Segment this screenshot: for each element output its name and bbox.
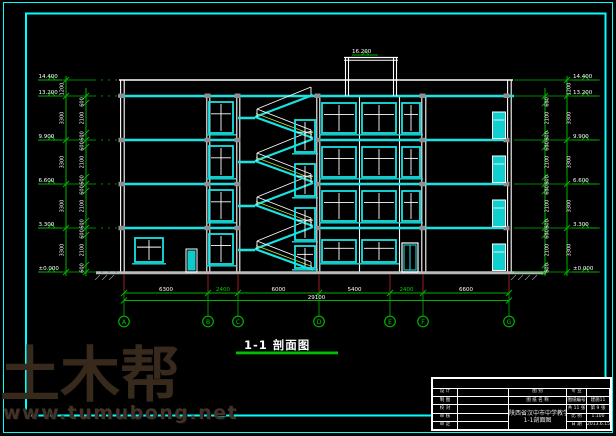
vdim-left-parapet: 1200 xyxy=(60,83,66,96)
tb-value xyxy=(458,405,509,413)
vdim-right-head: 600 xyxy=(545,263,551,273)
elevation-left-0: 14.400 xyxy=(39,74,59,80)
elevation-left-4: 3.300 xyxy=(39,222,55,228)
vdim-right-head: 600 xyxy=(545,219,551,229)
cad-drawing-sheet: 14.40013.2009.9006.6003.300±0.00014.4001… xyxy=(0,0,616,436)
tb-value: 建施11 xyxy=(587,397,610,405)
vdim-left-sill: 600 xyxy=(80,185,86,195)
vdim-left-sill: 600 xyxy=(80,229,86,239)
tb-header: 图 纸 名 称 xyxy=(509,397,567,405)
tb-project-name: 陕西省汉中市中学教学楼 xyxy=(509,411,566,417)
vdim-right-parapet: 1200 xyxy=(567,83,573,96)
tb-label: 校 对 xyxy=(433,405,458,413)
elevation-right-1: 13.200 xyxy=(573,90,593,96)
watermark-brand: 土木帮 xyxy=(0,346,180,406)
tb-label: 制 图 xyxy=(433,397,458,405)
title-block-top-strip xyxy=(433,379,610,389)
tb-value: 1:100 xyxy=(587,414,610,422)
vdim-right-sill: 600 xyxy=(545,185,551,195)
tb-label: 审 定 xyxy=(433,422,458,430)
vdim-right-story: 3300 xyxy=(567,112,573,125)
axis-dim-0: 6300 xyxy=(159,287,173,293)
tb-value xyxy=(458,414,509,422)
elevation-right-0: 14.400 xyxy=(573,74,593,80)
axis-dim-2: 6000 xyxy=(272,287,286,293)
elevation-right-4: 3.300 xyxy=(573,222,589,228)
axis-dim-5: 6600 xyxy=(459,287,473,293)
vdim-right-window: 2100 xyxy=(545,200,551,213)
vdim-left-story: 3300 xyxy=(60,156,66,169)
elevation-left-1: 13.200 xyxy=(39,90,59,96)
vdim-left-story: 3300 xyxy=(60,112,66,125)
tb-value xyxy=(587,389,610,397)
tb-value: 2013.6.15 xyxy=(587,422,610,430)
tb-label: 日 期 xyxy=(567,422,587,430)
vdim-left-window: 2100 xyxy=(80,112,86,125)
elevation-markers: 14.40013.2009.9006.6003.300±0.00014.4001… xyxy=(38,49,598,272)
axis-dim-4: 2400 xyxy=(400,287,414,293)
vdim-right-sill: 600 xyxy=(545,229,551,239)
vdim-right-window: 2100 xyxy=(545,112,551,125)
axis-bubble-4: E xyxy=(388,319,392,326)
axis-dim-3: 5400 xyxy=(348,287,362,293)
title-block-grid: 设 计 图 别 专 业 制 图 图 纸 名 称 图纸编号 建施11 校 对 陕西… xyxy=(433,389,610,430)
vdim-right-window: 2100 xyxy=(545,244,551,257)
vdim-right-head: 600 xyxy=(545,131,551,141)
tb-value xyxy=(458,422,509,430)
axis-bubble-1: B xyxy=(206,319,210,326)
vdim-right-head: 600 xyxy=(545,175,551,185)
vdim-right-sill: 600 xyxy=(545,97,551,107)
tb-project-sheet-cell: 陕西省汉中市中学教学楼 1-1剖面图 xyxy=(509,405,567,430)
axis-dim-1: 2400 xyxy=(216,287,230,293)
vdim-left-head: 600 xyxy=(80,131,86,141)
elevation-left-2: 9.900 xyxy=(39,134,55,140)
vdim-left-head: 600 xyxy=(80,219,86,229)
axis-bubble-2: C xyxy=(236,319,240,326)
tb-label: 图纸编号 xyxy=(567,397,587,405)
elevation-left-3: 6.600 xyxy=(39,178,55,184)
vdim-left-window: 2100 xyxy=(80,244,86,257)
vdim-left-story: 3300 xyxy=(60,200,66,213)
vdim-right-window: 2100 xyxy=(545,156,551,169)
vdim-left-sill: 600 xyxy=(80,97,86,107)
tb-value xyxy=(458,397,509,405)
windows-doors xyxy=(132,102,506,272)
elevation-bulkhead: 16.200 xyxy=(352,49,372,55)
vdim-left-head: 600 xyxy=(80,263,86,273)
vdim-left-head: 600 xyxy=(80,175,86,185)
title-block: 设 计 图 别 专 业 制 图 图 纸 名 称 图纸编号 建施11 校 对 陕西… xyxy=(431,377,612,431)
drawing-title: 1-1 剖面图 xyxy=(244,338,310,352)
axis-bubble-5: F xyxy=(421,319,425,326)
tb-label: 审 核 xyxy=(433,414,458,422)
tb-label: 设 计 xyxy=(433,389,458,397)
vdim-right-story: 3300 xyxy=(567,156,573,169)
tb-value: 第 9 张 xyxy=(587,405,610,413)
tb-label: 专 业 xyxy=(567,389,587,397)
overall-dim: 29100 xyxy=(308,295,326,301)
elevation-right-2: 9.900 xyxy=(573,134,589,140)
tb-label: 共 11 张 xyxy=(567,405,587,413)
vdim-right-sill: 600 xyxy=(545,141,551,151)
axis-bubble-6: G xyxy=(507,319,512,326)
tb-label: 比 例 xyxy=(567,414,587,422)
staircase-linework xyxy=(238,87,313,270)
vdim-left-window: 2100 xyxy=(80,200,86,213)
drawing-title-underline xyxy=(236,352,338,355)
vdim-right-story: 3300 xyxy=(567,244,573,257)
tb-sheet-name: 1-1剖面图 xyxy=(509,418,566,424)
axis-bubble-0: A xyxy=(122,319,127,326)
vdim-right-story: 3300 xyxy=(567,200,573,213)
axis-bubble-3: D xyxy=(317,319,322,326)
elevation-right-5: ±0.000 xyxy=(573,266,594,272)
vdim-left-window: 2100 xyxy=(80,156,86,169)
vdim-left-story: 3300 xyxy=(60,244,66,257)
watermark-url: www.tumubong.net xyxy=(3,404,238,423)
elevation-left-5: ±0.000 xyxy=(39,266,60,272)
vdim-left-sill: 600 xyxy=(80,141,86,151)
tb-header: 图 别 xyxy=(509,389,567,397)
tb-value xyxy=(458,389,509,397)
elevation-right-3: 6.600 xyxy=(573,178,589,184)
